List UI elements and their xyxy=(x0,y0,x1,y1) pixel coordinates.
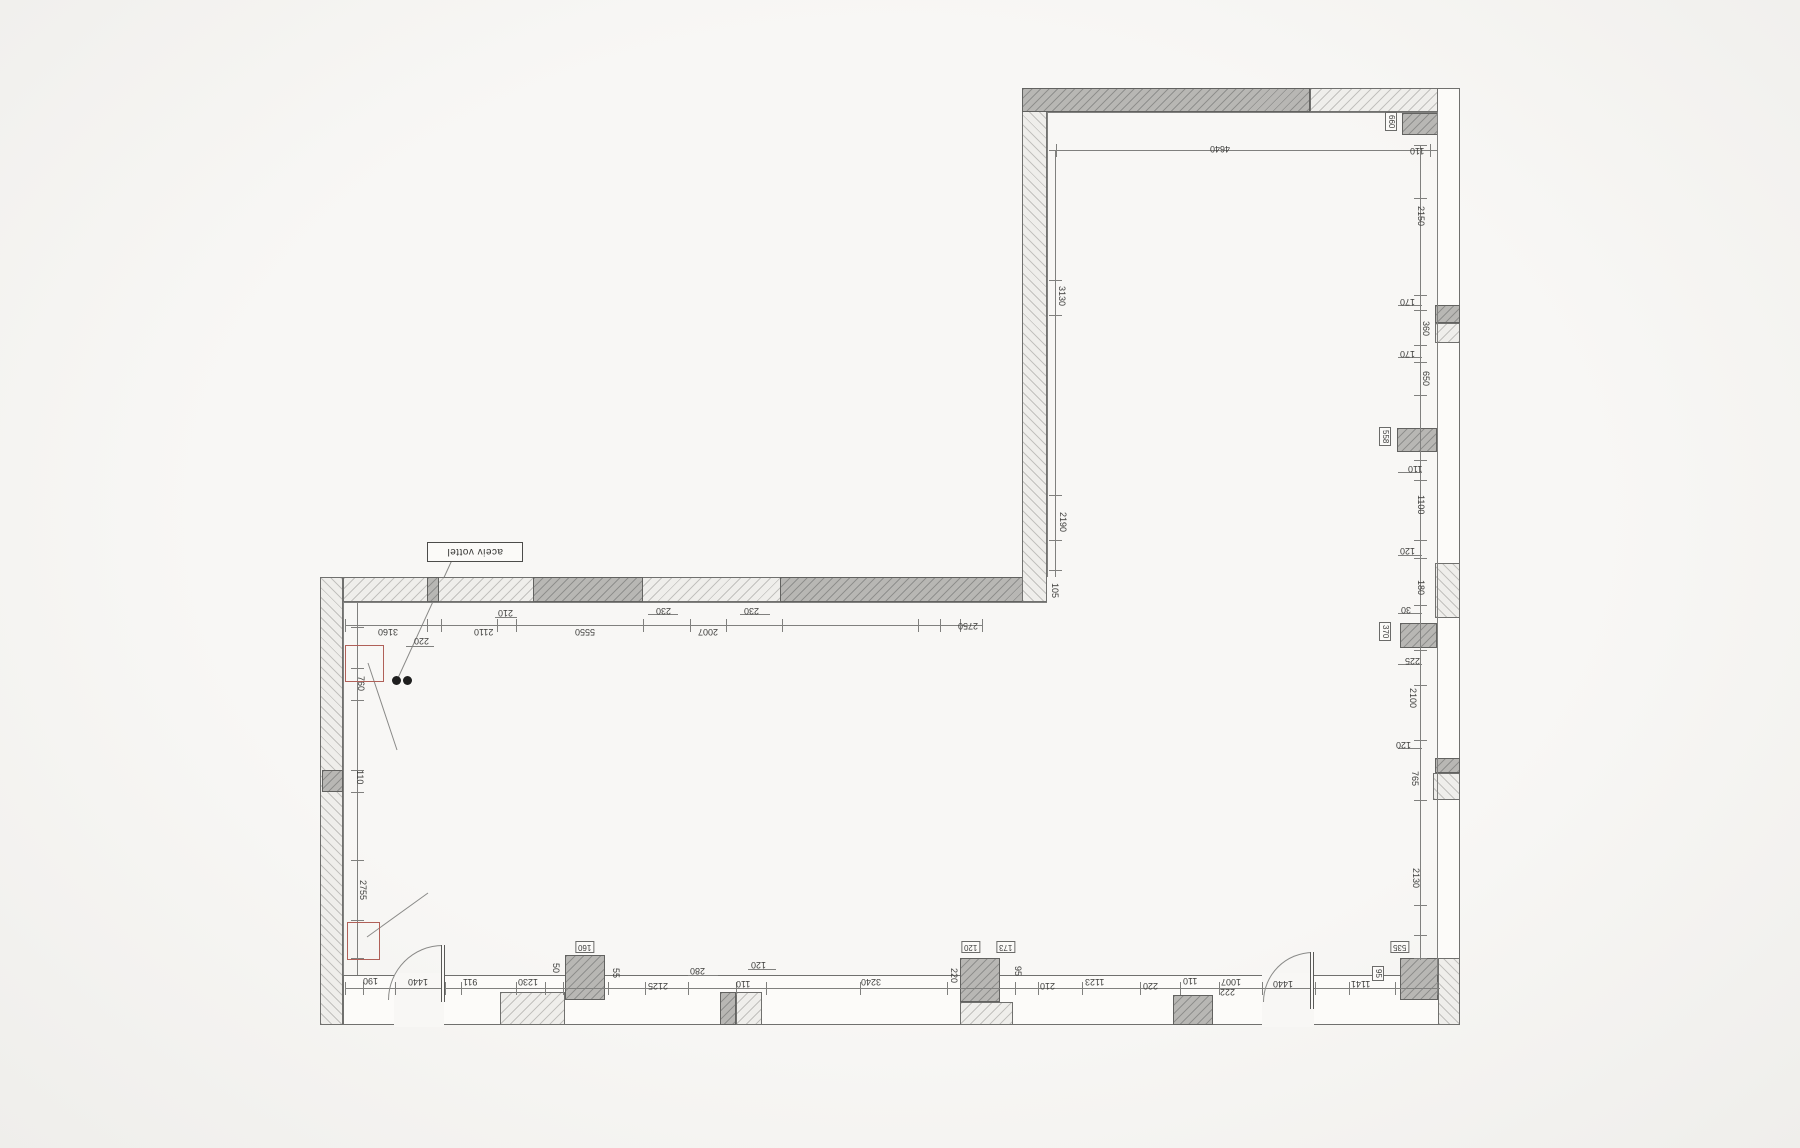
dim-tick xyxy=(516,619,517,632)
bottom-right-corner xyxy=(1438,958,1460,1025)
dimension-label: 1100 xyxy=(1416,495,1426,514)
dim-tick xyxy=(1414,310,1427,311)
dimension-label: 110 xyxy=(736,979,750,989)
door-swing-arc xyxy=(1263,952,1313,1002)
plan-line xyxy=(1055,150,1437,151)
dimension-label: 2100 xyxy=(1408,688,1418,708)
dimension-label: 2007 xyxy=(698,627,718,637)
dim-tick xyxy=(1056,144,1057,157)
dim-tick xyxy=(1082,982,1083,995)
plan-line xyxy=(1047,112,1048,577)
plan-line xyxy=(1437,112,1438,975)
dim-tick xyxy=(351,860,364,861)
bottom-pier-2 xyxy=(720,992,736,1025)
right-pier-5a xyxy=(1435,758,1460,773)
dimension-label: 50 xyxy=(551,963,561,973)
dimension-label: 3130 xyxy=(1057,286,1067,306)
dim-tick xyxy=(1049,280,1062,281)
dim-tick xyxy=(608,982,609,995)
dim-tick xyxy=(461,982,462,995)
dimension-label: 110 xyxy=(1410,146,1424,156)
bottom-right-pier xyxy=(1400,958,1438,1000)
dim-tick xyxy=(1414,800,1427,801)
dimension-label: 210 xyxy=(1040,981,1055,991)
dimension-label: 650 xyxy=(1421,371,1431,386)
dimension-label: 120 xyxy=(1396,740,1411,750)
dimension-label: 2110 xyxy=(474,627,493,637)
dim-tick xyxy=(1414,198,1427,199)
dimension-label: 55 xyxy=(611,968,621,978)
dimension-label: 535 xyxy=(1390,941,1409,953)
dimension-label: 3160 xyxy=(378,627,398,637)
bottom-pier-4 xyxy=(1173,995,1213,1025)
dim-tick xyxy=(1414,905,1427,906)
dim-tick xyxy=(947,982,948,995)
dimension-label: 220 xyxy=(1143,981,1158,991)
door-leaf xyxy=(1310,952,1314,1009)
dim-tick xyxy=(1414,958,1427,959)
dimension-label: 911 xyxy=(463,977,477,987)
bottom-pier-1 xyxy=(565,955,605,1000)
dim-tick xyxy=(1414,295,1427,296)
plan-line xyxy=(1055,150,1056,577)
left-wall-pier xyxy=(322,770,343,792)
dimension-label: 1141 xyxy=(1351,979,1370,989)
left-wall xyxy=(320,577,343,1025)
dimension-label: 558 xyxy=(1379,427,1391,446)
plan-line xyxy=(1047,112,1437,113)
bottom-hatch-1 xyxy=(500,992,565,1025)
dimension-label: 120 xyxy=(1400,546,1415,556)
dim-tick xyxy=(1414,460,1427,461)
dimension-label: 370 xyxy=(1379,622,1391,641)
dim-tick xyxy=(1038,982,1039,995)
bottom-hatch-3 xyxy=(960,1002,1013,1025)
dimension-label: 2750 xyxy=(958,621,978,631)
dim-tick xyxy=(688,982,689,995)
bottom-pier-3 xyxy=(960,958,1000,1002)
dimension-label: 360 xyxy=(1421,321,1431,336)
dim-tick xyxy=(1049,540,1062,541)
dimension-label: 2190 xyxy=(1058,512,1068,532)
dim-tick xyxy=(1414,605,1427,606)
dim-tick xyxy=(918,619,919,632)
dimension-label: 660 xyxy=(1385,112,1397,131)
upper-top-wall-dark xyxy=(1022,88,1310,112)
dim-tick xyxy=(940,619,941,632)
right-pier-3 xyxy=(1397,428,1437,452)
dim-tick xyxy=(351,700,364,701)
floor-plan-canvas: aceiv vottel 316022021102105550230200723… xyxy=(0,0,1800,1148)
dimension-label: 1007 xyxy=(1221,977,1241,987)
dim-tick xyxy=(516,982,517,995)
dim-tick xyxy=(351,920,364,921)
dimension-label: 180 xyxy=(1416,580,1426,595)
dimension-label: 5550 xyxy=(575,627,595,637)
right-pier-1 xyxy=(1402,113,1438,135)
dimension-label: 170 xyxy=(1400,297,1415,307)
dim-tick xyxy=(1315,982,1316,995)
right-pier-4 xyxy=(1400,623,1437,648)
dim-tick xyxy=(1414,740,1427,741)
dimension-label: 170 xyxy=(1400,349,1415,359)
dimension-label: 2755 xyxy=(358,880,368,900)
dimension-label: 110 xyxy=(1408,464,1422,474)
dimension-label: 173 xyxy=(996,941,1015,953)
right-pilaster xyxy=(1435,563,1460,618)
dim-tick xyxy=(1414,935,1427,936)
dimension-label: 95 xyxy=(1013,966,1023,976)
dimension-label: 210 xyxy=(498,608,513,618)
right-pier-2a xyxy=(1435,305,1460,323)
dim-tick xyxy=(351,792,364,793)
upper-left-wall xyxy=(1022,88,1047,602)
dim-tick xyxy=(1015,982,1016,995)
dim-tick xyxy=(1414,395,1427,396)
dim-tick xyxy=(1414,345,1427,346)
dim-tick xyxy=(563,982,564,995)
door-leaf xyxy=(441,945,445,1002)
red-marker xyxy=(345,645,384,682)
dimension-label: 95 xyxy=(1372,966,1384,981)
dim-tick xyxy=(1049,495,1062,496)
dimension-label: 30 xyxy=(1401,605,1411,615)
right-wall xyxy=(1437,88,1460,1025)
lower-top-window-b xyxy=(780,577,1040,602)
dim-tick xyxy=(766,982,767,995)
dim-tick xyxy=(545,982,546,995)
red-marker xyxy=(347,922,380,960)
dimension-label: 220 xyxy=(949,968,959,983)
dim-tick xyxy=(1049,315,1062,316)
dimension-label: 230 xyxy=(744,606,759,616)
dim-tick xyxy=(643,619,644,632)
dimension-label: 120 xyxy=(961,941,980,953)
dim-tick xyxy=(345,982,346,995)
dim-tick xyxy=(1049,570,1062,571)
plan-line xyxy=(343,602,344,975)
dimension-label: 2125 xyxy=(648,981,668,991)
dim-tick xyxy=(690,619,691,632)
dim-tick xyxy=(1349,982,1350,995)
lower-top-window-a xyxy=(533,577,643,602)
dim-tick xyxy=(1180,982,1181,995)
dimension-label: 230 xyxy=(656,606,671,616)
dim-tick xyxy=(1430,144,1431,157)
dim-tick xyxy=(1414,540,1427,541)
dimension-label: 120 xyxy=(751,960,766,970)
dimension-label: 2150 xyxy=(1416,206,1426,226)
dim-tick xyxy=(1140,982,1141,995)
dim-tick xyxy=(441,619,442,632)
dimension-label: 2130 xyxy=(1411,868,1421,888)
dimension-label: 190 xyxy=(363,976,378,986)
dim-tick xyxy=(497,619,498,632)
door-swing-arc xyxy=(388,945,443,1000)
plan-line xyxy=(406,646,434,647)
dim-tick xyxy=(1414,480,1427,481)
dim-tick xyxy=(345,619,346,632)
dimension-label: 222 xyxy=(1220,987,1235,997)
dimension-label: 110 xyxy=(355,770,365,784)
plan-line xyxy=(343,602,1047,603)
dimension-label: 4640 xyxy=(1210,144,1230,154)
dim-tick xyxy=(982,619,983,632)
dim-tick xyxy=(351,627,364,628)
plan-line xyxy=(1420,145,1421,960)
dim-tick xyxy=(1395,982,1396,995)
dim-tick xyxy=(1437,982,1438,995)
dimension-label: 105 xyxy=(1050,583,1060,598)
dim-tick xyxy=(1414,362,1427,363)
lower-top-wall-pier xyxy=(427,577,439,602)
equipment-label-box: aceiv vottel xyxy=(427,542,523,562)
dimension-label: 280 xyxy=(690,966,705,976)
dim-tick xyxy=(1414,685,1427,686)
dimension-label: 1230 xyxy=(518,977,538,987)
dim-tick xyxy=(445,982,446,995)
dim-tick xyxy=(427,619,428,632)
dimension-label: 1123 xyxy=(1085,977,1104,987)
right-pier-2b xyxy=(1435,323,1460,343)
dim-tick xyxy=(726,619,727,632)
dim-tick xyxy=(645,982,646,995)
bottom-hatch-2 xyxy=(736,992,762,1025)
outlet-dot xyxy=(392,676,401,685)
dim-tick xyxy=(1414,558,1427,559)
dimension-label: 765 xyxy=(1410,771,1420,786)
dimension-label: 160 xyxy=(575,941,594,953)
dim-tick xyxy=(782,619,783,632)
dimension-label: 3240 xyxy=(861,977,881,987)
dimension-label: 110 xyxy=(1183,976,1197,986)
outlet-dot xyxy=(403,676,412,685)
dimension-label: 225 xyxy=(1405,656,1420,666)
dim-tick xyxy=(1414,650,1427,651)
dimension-label: 220 xyxy=(414,636,429,646)
